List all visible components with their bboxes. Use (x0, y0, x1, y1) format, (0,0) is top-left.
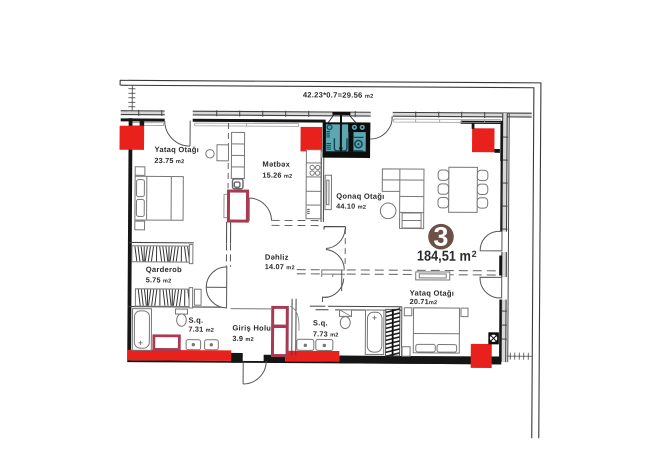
svg-text:Yataq Otağı: Yataq Otağı (154, 145, 199, 154)
svg-text:20.71m2: 20.71m2 (410, 297, 438, 306)
svg-text:S.q.: S.q. (188, 316, 203, 325)
svg-text:44.10 m2: 44.10 m2 (336, 202, 366, 211)
svg-text:3.9 m2: 3.9 m2 (232, 334, 254, 343)
svg-text:Dəhliz: Dəhliz (265, 253, 289, 262)
svg-text:Qonaq Otağı: Qonaq Otağı (336, 192, 384, 201)
svg-text:Qarderob: Qarderob (146, 265, 182, 274)
svg-text:42.23*0.7=29.56 m2: 42.23*0.7=29.56 m2 (303, 90, 374, 99)
svg-text:7.31 m2: 7.31 m2 (188, 325, 214, 334)
svg-text:5.75 m2: 5.75 m2 (146, 275, 172, 284)
svg-text:184,51 m: 184,51 m (417, 249, 471, 265)
svg-text:Giriş Holu: Giriş Holu (232, 323, 271, 332)
svg-text:7.73 m2: 7.73 m2 (313, 329, 339, 338)
svg-text:S.q.: S.q. (313, 318, 328, 327)
svg-text:3: 3 (433, 222, 448, 252)
svg-text:14.07 m2: 14.07 m2 (265, 262, 295, 271)
svg-text:15.26 m2: 15.26 m2 (262, 171, 292, 180)
svg-text:2: 2 (472, 249, 477, 259)
svg-text:23.75 m2: 23.75 m2 (154, 156, 184, 165)
svg-text:Mətbəx: Mətbəx (262, 160, 290, 169)
